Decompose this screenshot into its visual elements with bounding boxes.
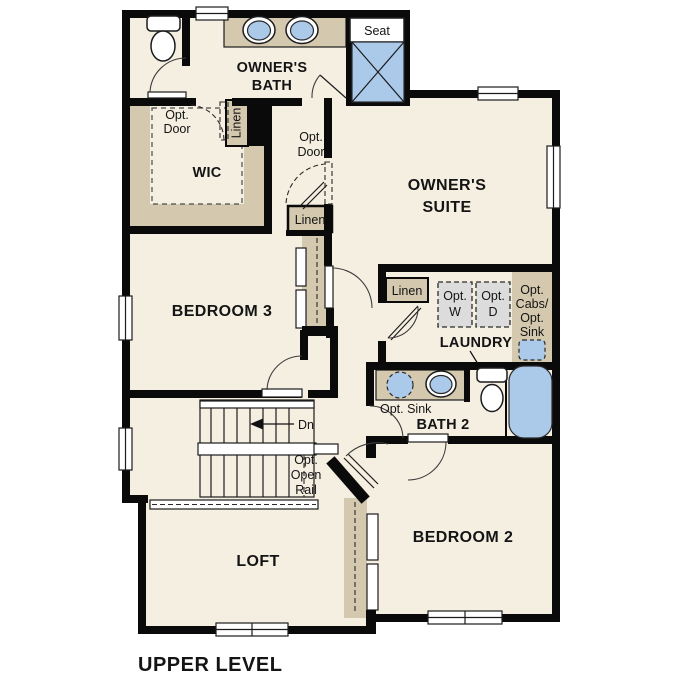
bedroom2-closet-door2 (367, 564, 378, 610)
window-loft-bottom (216, 623, 288, 636)
opt-dryer-label: Opt. (481, 289, 505, 303)
svg-text:Door: Door (163, 122, 190, 136)
seat-label: Seat (364, 24, 390, 38)
bathtub-icon (509, 366, 552, 438)
window-hall-left (119, 428, 132, 470)
laundry-label: LAUNDRY (440, 335, 512, 351)
svg-text:Rail: Rail (295, 483, 317, 497)
page-title: UPPER LEVEL (138, 654, 282, 676)
sink-icon (426, 371, 456, 397)
wic-label: WIC (192, 165, 221, 181)
bath2-opt-sink-label: Opt. Sink (380, 402, 432, 416)
bedroom3-closet-door1 (296, 248, 306, 286)
window-suite-right (547, 146, 560, 208)
loft-label: LOFT (236, 553, 279, 570)
opt-washer-label: Opt. (443, 289, 467, 303)
hall-linen-label: Linen (295, 213, 326, 227)
svg-text:Cabs/: Cabs/ (516, 297, 549, 311)
window-suite-top (478, 87, 518, 100)
opt-cabs-label: Opt. (520, 283, 544, 297)
window-bedroom3-left (119, 296, 132, 340)
svg-text:W: W (449, 305, 461, 319)
bedroom2-door-leaf (408, 434, 448, 442)
bath2-opt-sink-icon (387, 372, 413, 398)
wic-shelf-bottom (130, 204, 264, 226)
svg-text:Door: Door (297, 145, 324, 159)
svg-text:Opt.: Opt. (520, 311, 544, 325)
svg-text:BATH: BATH (252, 78, 292, 94)
bath2-label: BATH 2 (416, 417, 469, 433)
window-bath-top (196, 7, 228, 20)
bedroom3-label: BEDROOM 3 (172, 303, 273, 320)
svg-text:Sink: Sink (520, 325, 545, 339)
owners-suite-label: OWNER'S (408, 177, 487, 194)
floor-plan-svg: OWNER'S BATH Seat Opt. Door Linen Opt. D… (0, 0, 687, 687)
floorplan-canvas: OWNER'S BATH Seat Opt. Door Linen Opt. D… (0, 0, 687, 687)
dn-label: Dn (298, 418, 314, 432)
bedroom2-label: BEDROOM 2 (413, 529, 514, 546)
laundry-opt-sink-icon (519, 340, 545, 360)
owners-bath-label: OWNER'S (237, 60, 308, 76)
bedroom3-closet-door2 (296, 290, 306, 328)
opt-open-rail-label: Opt. (294, 453, 318, 467)
suite-opt-door-label: Opt. (299, 130, 323, 144)
window-bedroom2-bottom (428, 611, 502, 624)
svg-text:Open: Open (291, 468, 322, 482)
sink-icon (286, 17, 318, 44)
toilet-room-door-leaf (148, 92, 186, 98)
svg-text:D: D (488, 305, 497, 319)
wic-shelf-right (244, 146, 264, 208)
sink-icon (243, 17, 275, 44)
wic-opt-door-label: Opt. (165, 108, 189, 122)
laundry-linen-label: Linen (392, 284, 423, 298)
shower-icon (352, 42, 404, 102)
bedroom2-closet-door1 (367, 514, 378, 560)
suite-door-leaf (325, 266, 333, 308)
svg-text:SUITE: SUITE (422, 199, 471, 216)
bedroom3-door-leaf (262, 389, 302, 397)
linen-vertical-label: Linen (230, 108, 244, 139)
